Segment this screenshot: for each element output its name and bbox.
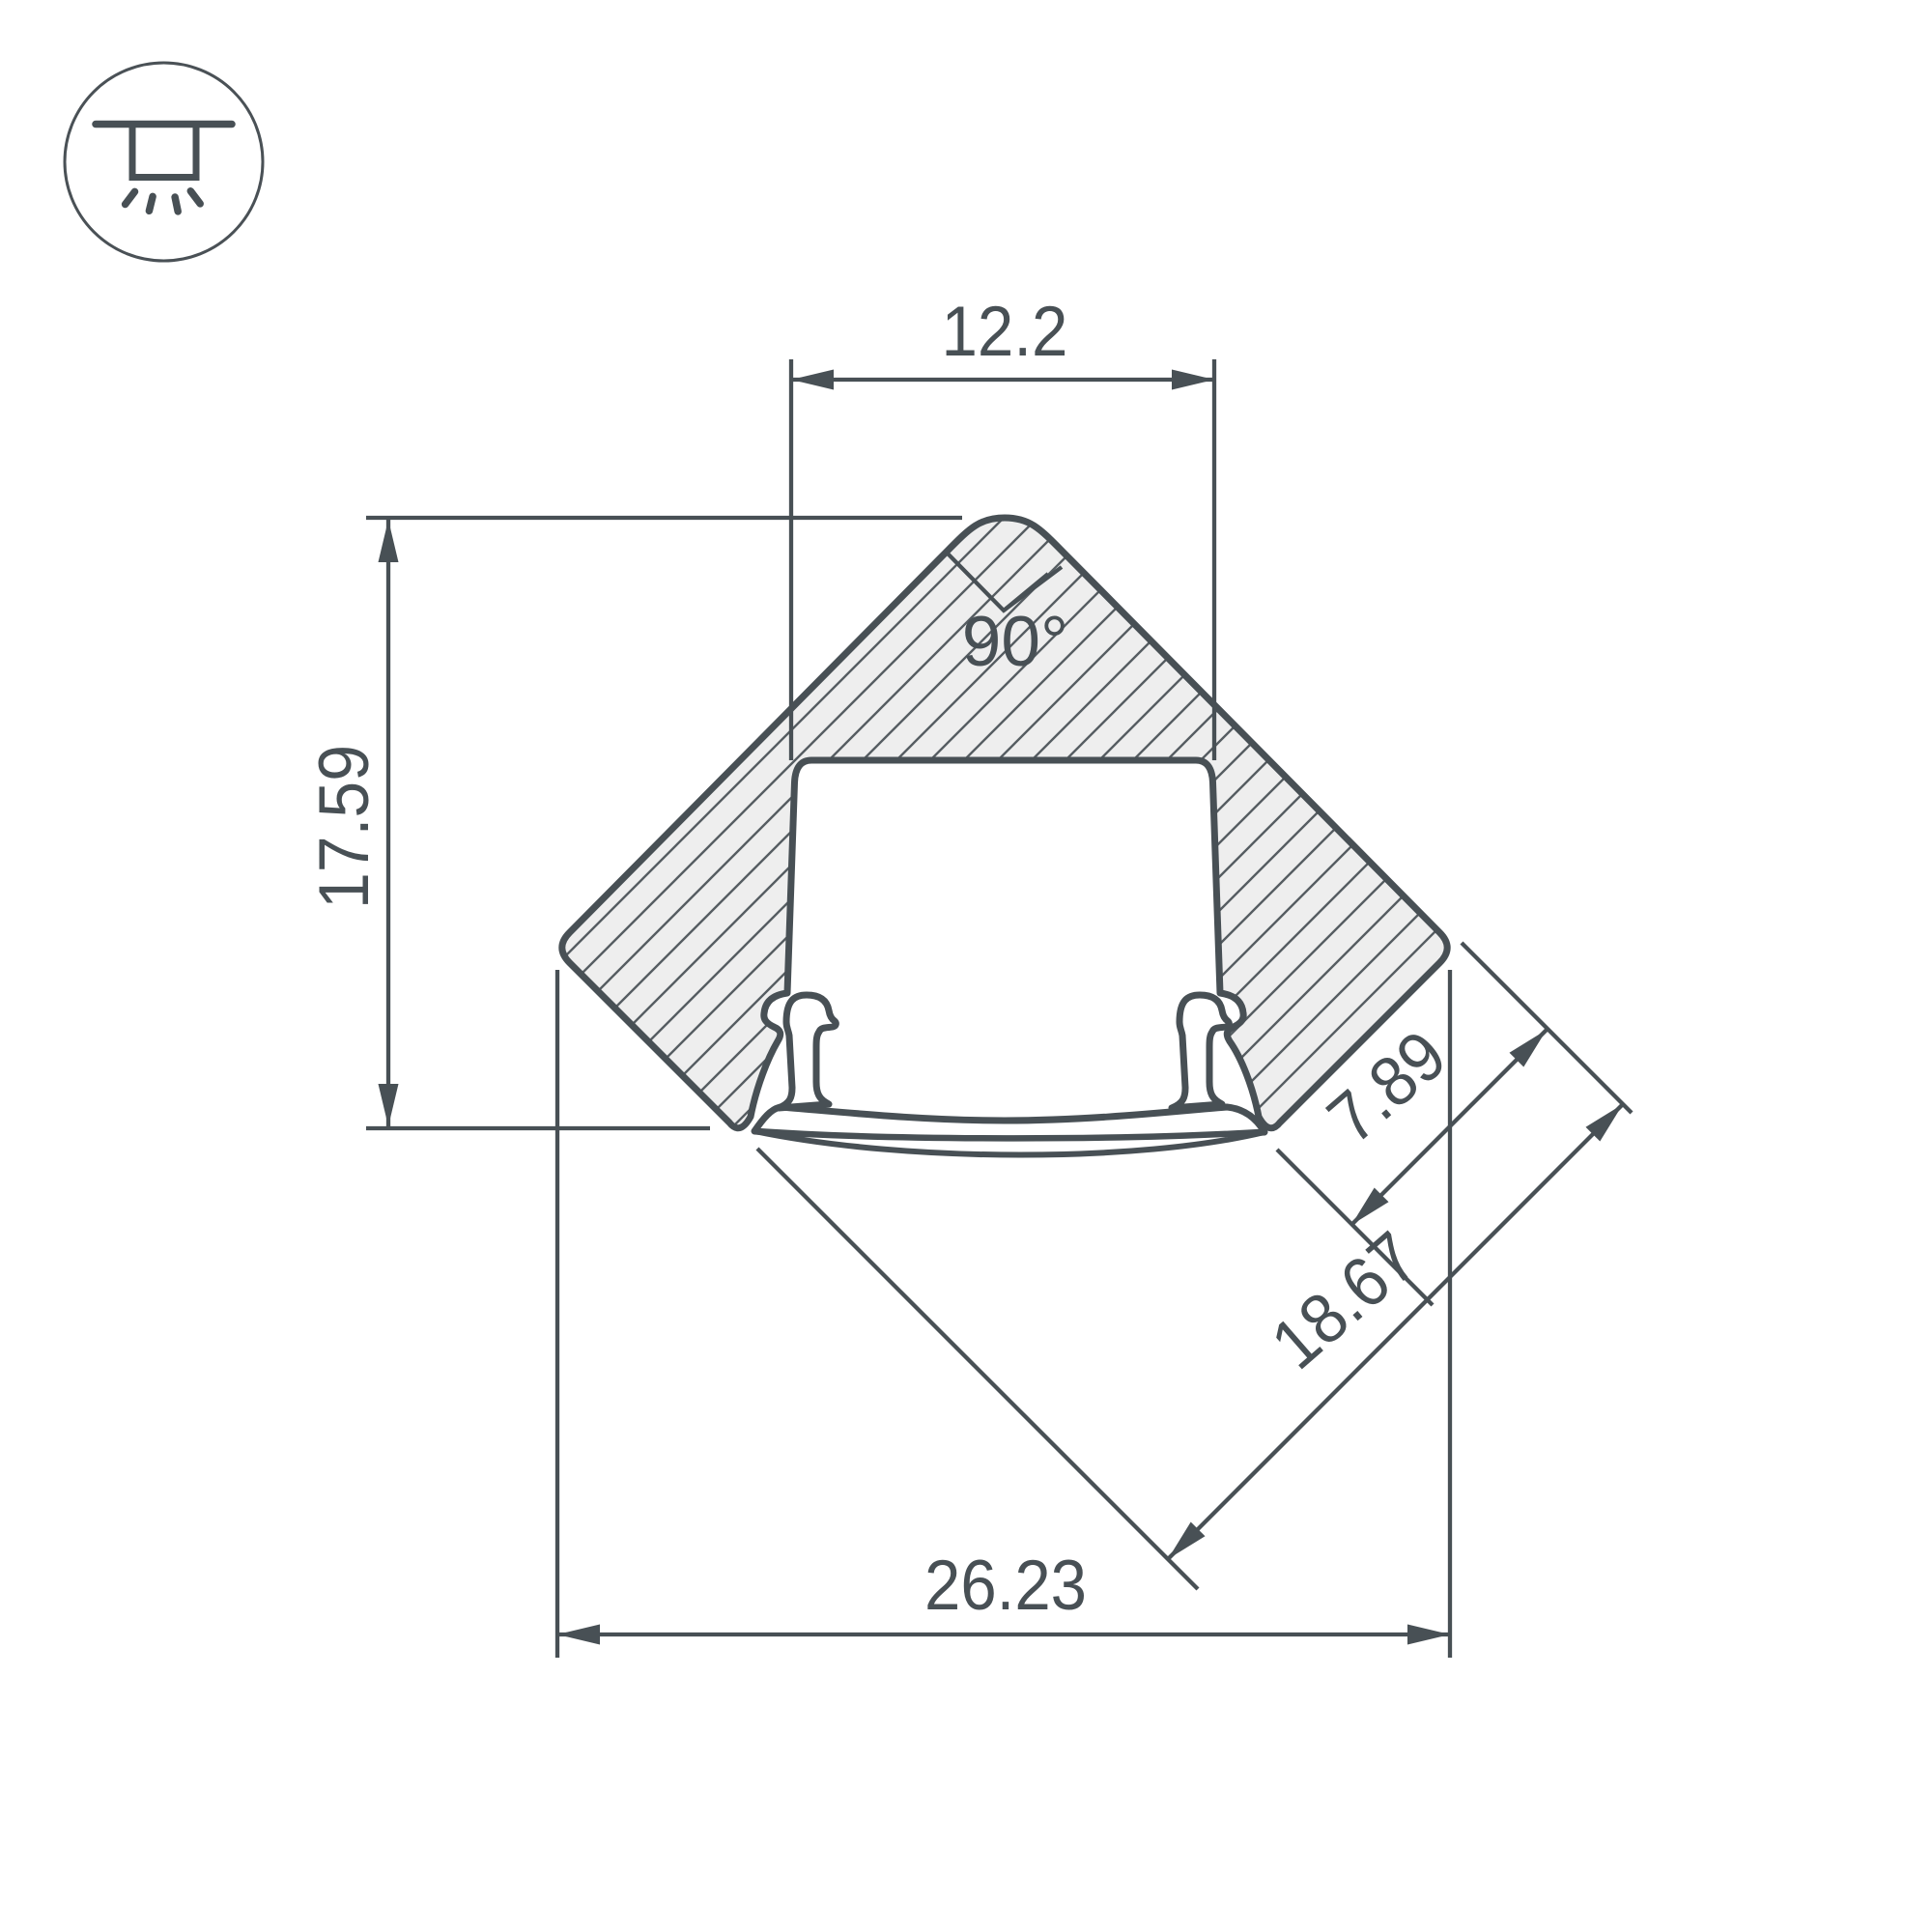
svg-text:90°: 90° <box>962 603 1068 681</box>
svg-text:26.23: 26.23 <box>924 1547 1087 1625</box>
svg-text:12.2: 12.2 <box>942 293 1068 371</box>
svg-text:17.59: 17.59 <box>305 745 384 909</box>
